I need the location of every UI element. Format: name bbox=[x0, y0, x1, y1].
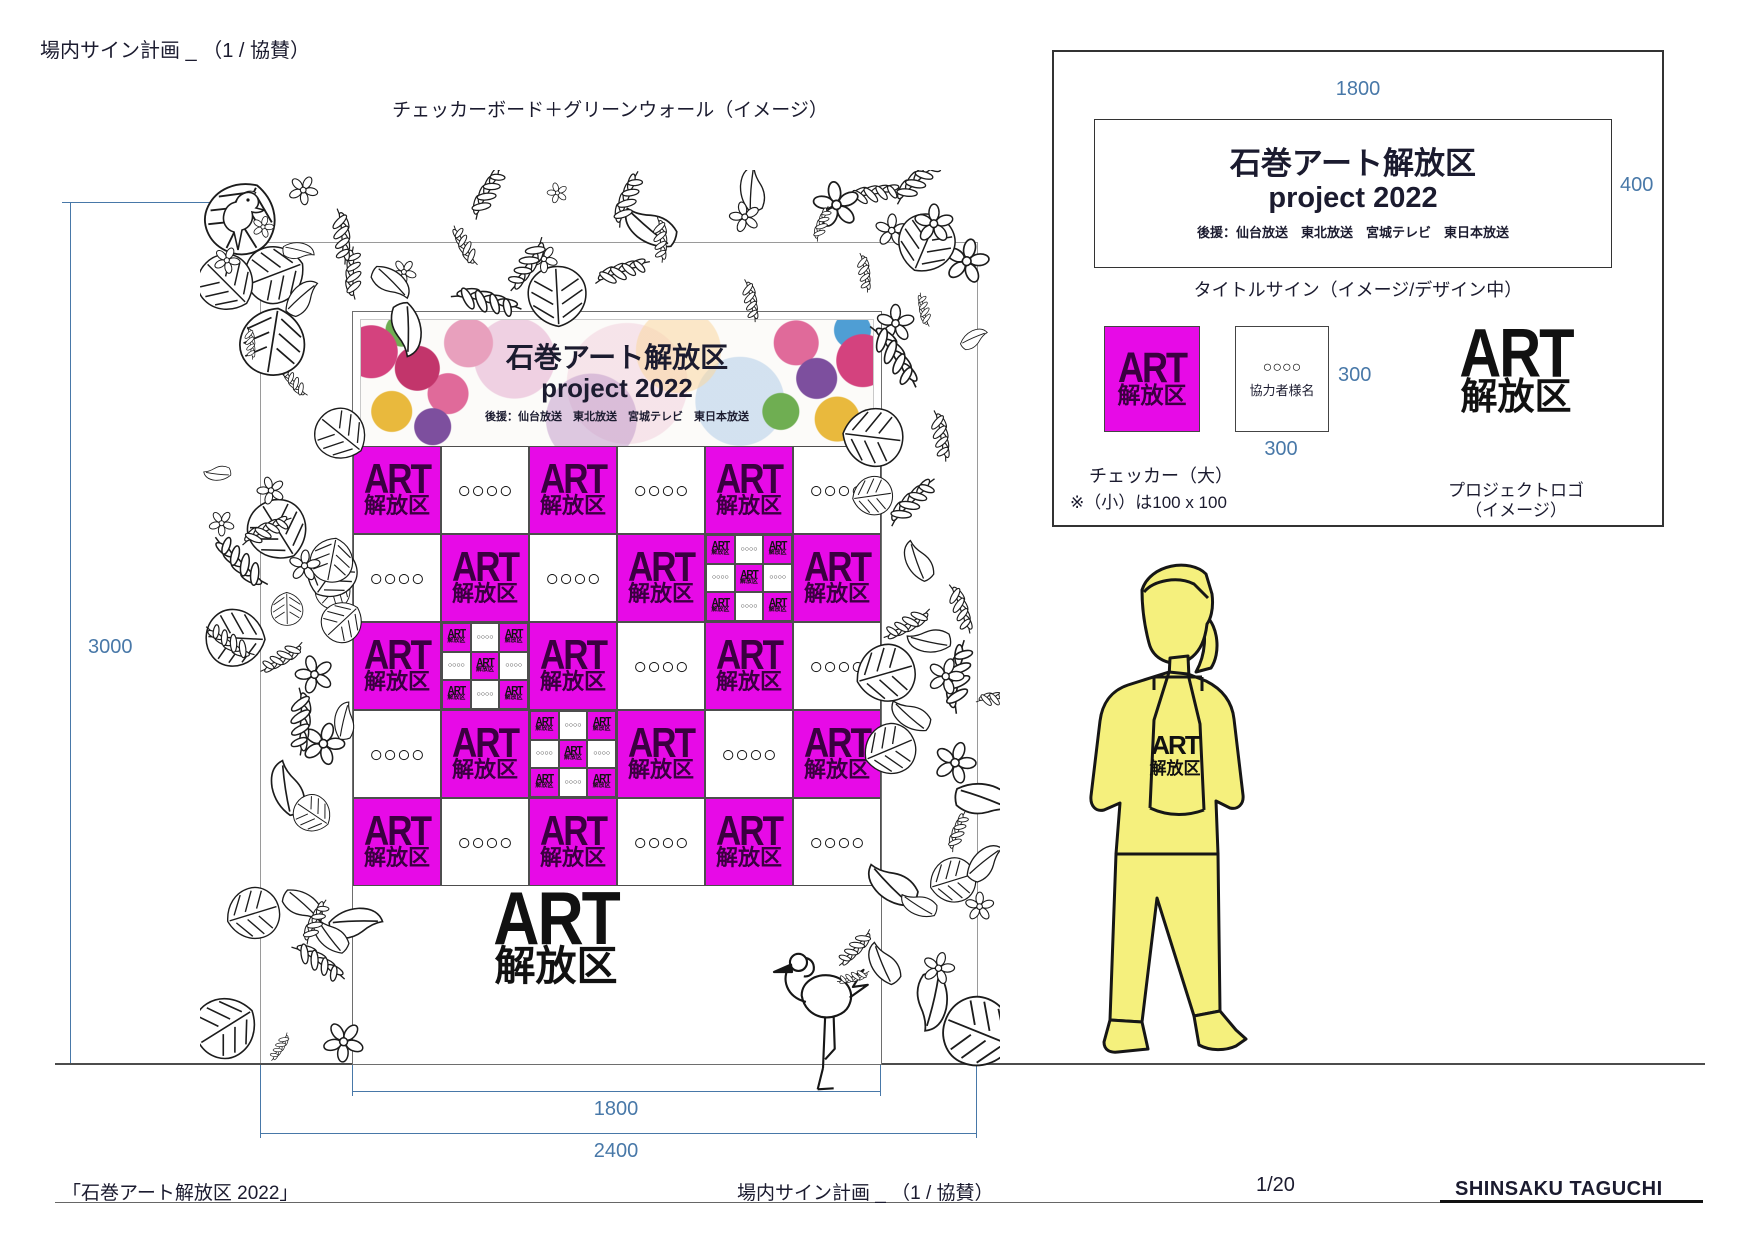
title-banner: 石巻アート解放区 project 2022 後援：仙台放送 東北放送 宮城テレビ… bbox=[360, 319, 874, 448]
logo-line1: ART bbox=[712, 541, 730, 552]
checker-tile-sample: ART解放区 bbox=[1104, 326, 1200, 432]
checker-cell-sponsor: ○○○○ bbox=[353, 710, 441, 798]
art-kaihoku-logo: ART解放区 bbox=[447, 630, 465, 644]
logo-line1: ART bbox=[452, 726, 518, 763]
art-kaihoku-logo: ART解放区 bbox=[804, 728, 870, 779]
dim-3000-label: 3000 bbox=[88, 636, 133, 659]
checker-cell-logo: ART解放区 bbox=[353, 622, 441, 710]
checker-cell-sponsor: ○○○○ bbox=[529, 534, 617, 622]
sponsor-placeholder-circles: ○○○○ bbox=[505, 662, 522, 669]
flamingo-illustration bbox=[768, 940, 878, 1100]
title-sign-caption: タイトルサイン（イメージ/デザイン中） bbox=[1054, 276, 1662, 302]
sign-panel: 石巻アート解放区 project 2022 後援：仙台放送 東北放送 宮城テレビ… bbox=[352, 311, 882, 1065]
footer-plan-title: 場内サイン計画 _ （1 / 協賛） bbox=[737, 1178, 994, 1205]
foliage-sprig bbox=[239, 327, 262, 361]
project-logo-caption-2: （イメージ） bbox=[1421, 496, 1611, 521]
banner-sponsors: 後援：仙台放送 東北放送 宮城テレビ 東日本放送 bbox=[485, 408, 749, 424]
mini-cell-sponsor: ○○○○ bbox=[735, 535, 764, 564]
checker-width-label: 300 bbox=[1235, 438, 1327, 461]
mini-cell-sponsor: ○○○○ bbox=[471, 680, 500, 709]
checker-cell-logo: ART解放区 bbox=[617, 710, 705, 798]
logo-line1: ART bbox=[493, 885, 619, 953]
mockup-caption: チェッカーボード＋グリーンウォール（イメージ） bbox=[370, 95, 850, 122]
cooperator-tile-sample: ○○○○ 協力者様名 bbox=[1235, 326, 1329, 432]
foliage-sprig bbox=[211, 191, 269, 237]
art-kaihoku-logo: ART解放区 bbox=[364, 464, 430, 515]
checker-note: ※（小）は100 x 100 bbox=[1070, 488, 1227, 513]
art-kaihoku-logo: ART解放区 bbox=[593, 718, 611, 732]
logo-line1: ART bbox=[593, 717, 611, 728]
dim-2400-ext-left bbox=[260, 1065, 261, 1138]
person-scale-figure: ART 解放区 bbox=[1058, 558, 1278, 1118]
mini-cell-sponsor: ○○○○ bbox=[706, 564, 735, 593]
figure-left-foot bbox=[1104, 1020, 1148, 1052]
logo-line1: ART bbox=[476, 658, 494, 669]
logo-line1: ART bbox=[628, 550, 694, 587]
art-kaihoku-logo: ART解放区 bbox=[1118, 352, 1187, 405]
sign-sponsors: 後援：仙台放送 東北放送 宮城テレビ 東日本放送 bbox=[1197, 222, 1509, 241]
sponsor-placeholder-circles: ○○○○ bbox=[545, 567, 601, 590]
logo-line1: ART bbox=[452, 550, 518, 587]
sponsor-placeholder-circles: ○○○○ bbox=[633, 655, 689, 678]
foliage-sprig bbox=[200, 985, 268, 1069]
logo-line1: ART bbox=[505, 687, 523, 698]
art-kaihoku-logo: ART解放区 bbox=[1459, 328, 1572, 413]
mini-cell-sponsor: ○○○○ bbox=[559, 768, 588, 797]
checker-cell-logo: ART解放区 bbox=[705, 446, 793, 534]
mini-cell-logo: ART解放区 bbox=[763, 535, 792, 564]
mini-cell-logo: ART解放区 bbox=[763, 592, 792, 621]
checker-cell-sponsor: ○○○○ bbox=[441, 446, 529, 534]
sponsor-placeholder-circles: ○○○○ bbox=[809, 655, 865, 678]
sponsor-placeholder-circles: ○○○○ bbox=[809, 479, 865, 502]
logo-line1: ART bbox=[628, 726, 694, 763]
checker-cell-sponsor: ○○○○ bbox=[705, 710, 793, 798]
checker-cell-sponsor: ○○○○ bbox=[793, 622, 881, 710]
sponsor-placeholder-circles: ○○○○ bbox=[369, 567, 425, 590]
logo-line1: ART bbox=[716, 814, 782, 851]
foliage-sprig bbox=[286, 174, 320, 206]
logo-line1: ART bbox=[716, 638, 782, 675]
foliage-sprig bbox=[913, 204, 954, 243]
mini-cell-logo: ART解放区 bbox=[559, 740, 588, 769]
checker-cell-logo: ART解放区 bbox=[529, 798, 617, 886]
mini-cell-logo: ART解放区 bbox=[530, 711, 559, 740]
mini-cell-logo: ART解放区 bbox=[587, 768, 616, 797]
sponsor-placeholder-circles: ○○○○ bbox=[448, 662, 465, 669]
checker-cell-logo: ART解放区 bbox=[529, 446, 617, 534]
figure-pants bbox=[1110, 854, 1220, 1022]
checker-cell-logo: ART解放区 bbox=[705, 798, 793, 886]
sponsor-placeholder-circles: ○○○○ bbox=[633, 831, 689, 854]
footer-page-number: 1/20 bbox=[1256, 1174, 1295, 1197]
footer-project-title: 「石巻アート解放区 2022」 bbox=[62, 1178, 298, 1205]
checker-cell-logo: ART解放区 bbox=[617, 534, 705, 622]
mini-cell-logo: ART解放区 bbox=[735, 564, 764, 593]
dim-2400-label: 2400 bbox=[560, 1140, 672, 1163]
foliage-sprig bbox=[248, 212, 278, 243]
dim-3000-tick bbox=[62, 202, 223, 203]
foliage-sprig bbox=[205, 608, 267, 668]
foliage-sprig bbox=[806, 173, 868, 236]
art-kaihoku-logo: ART解放区 bbox=[769, 599, 787, 613]
art-kaihoku-logo: ART解放区 bbox=[716, 816, 782, 867]
foliage-sprig bbox=[544, 180, 571, 206]
sign-height-label: 400 bbox=[1620, 174, 1653, 197]
logo-line1: ART bbox=[505, 629, 523, 640]
figure-chest-logo: ART 解放区 bbox=[1150, 730, 1201, 778]
sponsor-placeholder-circles: ○○○○ bbox=[741, 603, 758, 610]
mini-cell-logo: ART解放区 bbox=[706, 592, 735, 621]
detail-panel: 1800 石巻アート解放区 project 2022 後援：仙台放送 東北放送 … bbox=[1052, 50, 1664, 527]
sponsor-placeholder-circles: ○○○○ bbox=[477, 634, 494, 641]
foliage-sprig bbox=[205, 507, 237, 540]
mini-checkerboard: ART解放区○○○○ART解放区○○○○ART解放区○○○○ART解放区○○○○… bbox=[706, 535, 792, 621]
foliage-sprig bbox=[200, 243, 266, 322]
dim-2400-ext-right bbox=[976, 1065, 977, 1138]
dim-2400-line bbox=[260, 1133, 977, 1134]
sign-width-label: 1800 bbox=[1054, 78, 1662, 101]
checker-cell-sponsor: ○○○○ bbox=[617, 622, 705, 710]
logo-line1: ART bbox=[716, 462, 782, 499]
foliage-sprig bbox=[227, 189, 262, 220]
art-kaihoku-logo: ART解放区 bbox=[804, 552, 870, 603]
sponsor-placeholder-circles: ○○○○ bbox=[633, 479, 689, 502]
sponsor-placeholder-circles: ○○○○ bbox=[536, 750, 553, 757]
logo-line1: ART bbox=[804, 726, 870, 763]
art-kaihoku-logo: ART解放区 bbox=[540, 816, 606, 867]
art-kaihoku-logo: ART解放区 bbox=[716, 640, 782, 691]
base-project-logo: ART解放区 bbox=[481, 890, 631, 984]
sponsor-placeholder-circles: ○○○○ bbox=[769, 574, 786, 581]
foliage-sprig bbox=[847, 175, 904, 213]
art-kaihoku-logo: ART解放区 bbox=[716, 464, 782, 515]
parrot-illustration bbox=[223, 192, 264, 250]
logo-line1: ART bbox=[593, 775, 611, 786]
art-kaihoku-logo: ART解放区 bbox=[564, 747, 582, 761]
logo-line1: ART bbox=[564, 746, 582, 757]
logo-line1: ART bbox=[364, 638, 430, 675]
art-kaihoku-logo: ART解放区 bbox=[628, 552, 694, 603]
logo-line1: ART bbox=[540, 814, 606, 851]
mini-cell-logo: ART解放区 bbox=[499, 680, 528, 709]
logo-line1: ART bbox=[540, 462, 606, 499]
checker-cell-sponsor: ○○○○ bbox=[441, 798, 529, 886]
logo-line1: ART bbox=[804, 550, 870, 587]
foliage-sprig bbox=[202, 458, 233, 486]
checker-cell-sponsor: ○○○○ bbox=[793, 798, 881, 886]
art-kaihoku-logo: ART解放区 bbox=[364, 816, 430, 867]
foliage-sprig bbox=[976, 682, 1000, 714]
art-kaihoku-logo: ART解放区 bbox=[593, 775, 611, 789]
art-kaihoku-logo: ART解放区 bbox=[711, 599, 729, 613]
mini-cell-sponsor: ○○○○ bbox=[499, 652, 528, 681]
checker-cell-logo: ART解放区 bbox=[705, 622, 793, 710]
checker-cell-logo: ART解放区 bbox=[441, 710, 529, 798]
sponsor-placeholder-circles: ○○○○ bbox=[477, 691, 494, 698]
dim-1800-label: 1800 bbox=[560, 1098, 672, 1121]
logo-line1: ART bbox=[536, 775, 554, 786]
sponsor-placeholder-circles: ○○○○ bbox=[593, 750, 610, 757]
mini-cell-sponsor: ○○○○ bbox=[442, 652, 471, 681]
checker-cell-logo: ART解放区 bbox=[529, 622, 617, 710]
mini-cell-logo: ART解放区 bbox=[499, 623, 528, 652]
logo-line1: ART bbox=[364, 814, 430, 851]
checker-caption: チェッカー（大） bbox=[1076, 462, 1246, 488]
sponsor-placeholder-circles: ○○○○ bbox=[809, 831, 865, 854]
checker-cell-mini-board: ART解放区○○○○ART解放区○○○○ART解放区○○○○ART解放区○○○○… bbox=[529, 710, 617, 798]
sponsor-placeholder-circles: ○○○○ bbox=[712, 574, 729, 581]
mini-checkerboard: ART解放区○○○○ART解放区○○○○ART解放区○○○○ART解放区○○○○… bbox=[530, 711, 616, 797]
checker-cell-logo: ART解放区 bbox=[793, 534, 881, 622]
art-kaihoku-logo: ART解放区 bbox=[740, 571, 758, 585]
footer-author: SHINSAKU TAGUCHI bbox=[1455, 1178, 1663, 1201]
mini-cell-sponsor: ○○○○ bbox=[559, 711, 588, 740]
mini-cell-logo: ART解放区 bbox=[706, 535, 735, 564]
logo-line1: ART bbox=[740, 570, 758, 581]
art-kaihoku-logo: ART解放区 bbox=[535, 775, 553, 789]
sponsor-placeholder-circles: ○○○○ bbox=[457, 831, 513, 854]
foliage-sprig bbox=[458, 170, 518, 221]
sponsor-placeholder-circles: ○○○○ bbox=[565, 779, 582, 786]
mini-cell-sponsor: ○○○○ bbox=[471, 623, 500, 652]
sign-subtitle: project 2022 bbox=[1268, 182, 1437, 215]
sponsor-placeholder-circles: ○○○○ bbox=[457, 479, 513, 502]
checker-cell-sponsor: ○○○○ bbox=[353, 534, 441, 622]
sponsor-placeholder-circles: ○○○○ bbox=[369, 743, 425, 766]
foliage-sprig bbox=[209, 242, 245, 279]
art-kaihoku-logo: ART解放区 bbox=[452, 728, 518, 779]
art-kaihoku-logo: ART解放区 bbox=[505, 630, 523, 644]
mini-cell-sponsor: ○○○○ bbox=[763, 564, 792, 593]
art-kaihoku-logo: ART解放区 bbox=[769, 542, 787, 556]
sponsor-placeholder-circles: ○○○○ bbox=[721, 743, 777, 766]
sponsor-placeholder-circles: ○○○○ bbox=[565, 722, 582, 729]
foliage-sprig bbox=[730, 170, 776, 215]
art-kaihoku-logo: ART解放区 bbox=[447, 687, 465, 701]
art-kaihoku-logo: ART解放区 bbox=[505, 687, 523, 701]
logo-line1: ART bbox=[712, 599, 730, 610]
logo-line1: ART bbox=[1459, 323, 1572, 385]
logo-line1: ART bbox=[536, 717, 554, 728]
svg-text:解放区: 解放区 bbox=[1150, 758, 1201, 778]
project-logo-sample: ART解放区 bbox=[1421, 328, 1611, 413]
foliage-sprig bbox=[804, 204, 840, 242]
banner-title: 石巻アート解放区 bbox=[506, 343, 728, 374]
checker-cell-logo: ART解放区 bbox=[441, 534, 529, 622]
art-kaihoku-logo: ART解放区 bbox=[711, 542, 729, 556]
mini-cell-logo: ART解放区 bbox=[442, 623, 471, 652]
logo-line1: ART bbox=[769, 541, 787, 552]
art-kaihoku-logo: ART解放区 bbox=[535, 718, 553, 732]
checker-cell-sponsor: ○○○○ bbox=[617, 798, 705, 886]
logo-line1: ART bbox=[448, 629, 466, 640]
checker-cell-sponsor: ○○○○ bbox=[617, 446, 705, 534]
page-title: 場内サイン計画 _ （1 / 協賛） bbox=[40, 34, 310, 63]
checker-cell-logo: ART解放区 bbox=[353, 446, 441, 534]
mini-cell-sponsor: ○○○○ bbox=[530, 740, 559, 769]
figure-right-foot bbox=[1194, 1011, 1246, 1050]
dim-3000-line bbox=[70, 202, 71, 1063]
mini-cell-sponsor: ○○○○ bbox=[587, 740, 616, 769]
checker-cell-sponsor: ○○○○ bbox=[793, 446, 881, 534]
checker-cell-logo: ART解放区 bbox=[353, 798, 441, 886]
logo-line1: ART bbox=[769, 599, 787, 610]
mini-cell-logo: ART解放区 bbox=[530, 768, 559, 797]
art-kaihoku-logo: ART解放区 bbox=[540, 640, 606, 691]
banner-subtitle: project 2022 bbox=[541, 374, 693, 403]
logo-line1: ART bbox=[364, 462, 430, 499]
checker-cell-mini-board: ART解放区○○○○ART解放区○○○○ART解放区○○○○ART解放区○○○○… bbox=[441, 622, 529, 710]
logo-line1: ART bbox=[1118, 350, 1186, 388]
drawing-page: 場内サイン計画 _ （1 / 協賛） チェッカーボード＋グリーンウォール（イメー… bbox=[0, 0, 1754, 1239]
foliage-sprig bbox=[203, 613, 256, 670]
checkerboard: ART解放区○○○○ART解放区○○○○ART解放区○○○○○○○○ART解放区… bbox=[353, 446, 881, 886]
checker-height-label: 300 bbox=[1338, 364, 1371, 387]
mini-checkerboard: ART解放区○○○○ART解放区○○○○ART解放区○○○○ART解放区○○○○… bbox=[442, 623, 528, 709]
foliage-sprig bbox=[599, 170, 657, 229]
checker-cell-mini-board: ART解放区○○○○ART解放区○○○○ART解放区○○○○ART解放区○○○○… bbox=[705, 534, 793, 622]
checker-cell-logo: ART解放区 bbox=[793, 710, 881, 798]
logo-line1: ART bbox=[540, 638, 606, 675]
foliage-sprig bbox=[724, 195, 766, 238]
cooperator-label: 協力者様名 bbox=[1249, 380, 1314, 399]
sign-title: 石巻アート解放区 bbox=[1230, 146, 1476, 182]
mini-cell-logo: ART解放区 bbox=[471, 652, 500, 681]
art-kaihoku-logo: ART解放区 bbox=[452, 552, 518, 603]
sponsor-placeholder-circles: ○○○○ bbox=[741, 546, 758, 553]
cooperator-circles: ○○○○ bbox=[1263, 359, 1302, 377]
foliage-sprig bbox=[885, 170, 951, 206]
mini-cell-logo: ART解放区 bbox=[587, 711, 616, 740]
logo-line1: ART bbox=[448, 687, 466, 698]
art-kaihoku-logo: ART解放区 bbox=[364, 640, 430, 691]
art-kaihoku-logo: ART解放区 bbox=[493, 890, 619, 984]
art-kaihoku-logo: ART解放区 bbox=[540, 464, 606, 515]
mini-cell-logo: ART解放区 bbox=[442, 680, 471, 709]
art-kaihoku-logo: ART解放区 bbox=[628, 728, 694, 779]
svg-text:ART: ART bbox=[1151, 730, 1201, 760]
art-kaihoku-logo: ART解放区 bbox=[476, 659, 494, 673]
title-sign-spec: 石巻アート解放区 project 2022 後援：仙台放送 東北放送 宮城テレビ… bbox=[1094, 119, 1612, 268]
mini-cell-sponsor: ○○○○ bbox=[735, 592, 764, 621]
